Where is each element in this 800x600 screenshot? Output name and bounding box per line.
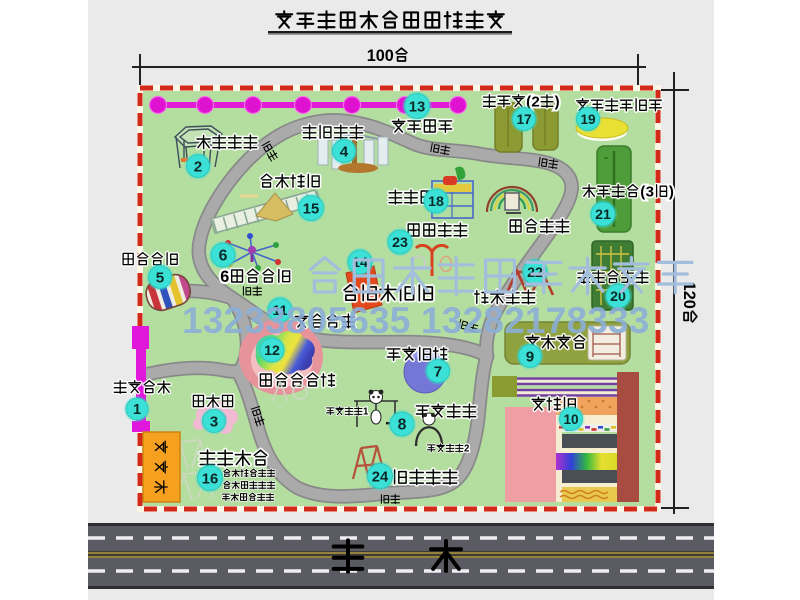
svg-text:12: 12: [264, 343, 280, 359]
svg-text:2: 2: [464, 444, 469, 455]
svg-text:13233805635 13282178333: 13233805635 13282178333: [182, 300, 650, 341]
svg-text:0: 0: [376, 47, 385, 65]
svg-text:2: 2: [194, 159, 202, 176]
svg-text:18: 18: [428, 194, 444, 210]
svg-text:1: 1: [133, 402, 141, 418]
svg-text:19: 19: [580, 112, 596, 127]
svg-text:4: 4: [340, 144, 349, 161]
svg-text:8: 8: [398, 417, 407, 434]
svg-text:1: 1: [367, 47, 376, 65]
svg-text:7: 7: [434, 364, 442, 381]
svg-text:2: 2: [531, 93, 539, 110]
svg-text:): ): [669, 183, 674, 200]
svg-text:24: 24: [372, 469, 389, 485]
svg-text:1: 1: [363, 407, 369, 418]
svg-text:15: 15: [303, 201, 319, 217]
svg-text:3: 3: [210, 414, 218, 431]
svg-text:17: 17: [516, 112, 531, 127]
svg-text:23: 23: [392, 235, 408, 251]
svg-text:13: 13: [409, 99, 425, 115]
svg-text:): ): [555, 93, 560, 110]
svg-text:10: 10: [563, 412, 578, 427]
svg-text:9: 9: [526, 349, 534, 366]
svg-text:6: 6: [220, 268, 229, 286]
svg-text:16: 16: [202, 471, 218, 487]
svg-text:5: 5: [156, 270, 165, 287]
svg-text:3: 3: [646, 183, 654, 200]
svg-text:21: 21: [595, 207, 611, 223]
svg-text:6: 6: [219, 248, 228, 265]
svg-text:2: 2: [680, 291, 698, 300]
svg-text:0: 0: [385, 47, 394, 65]
svg-text:0: 0: [680, 300, 698, 309]
